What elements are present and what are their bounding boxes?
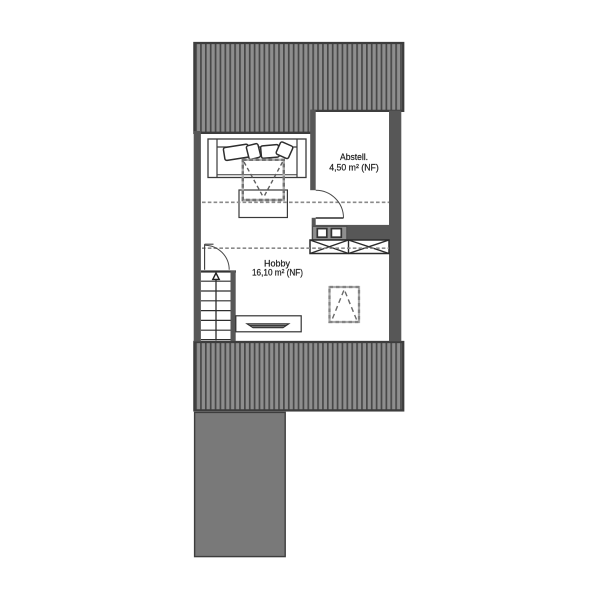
svg-text:16,10 m² (NF): 16,10 m² (NF) — [252, 268, 303, 279]
svg-text:4,50 m² (NF): 4,50 m² (NF) — [329, 162, 379, 173]
